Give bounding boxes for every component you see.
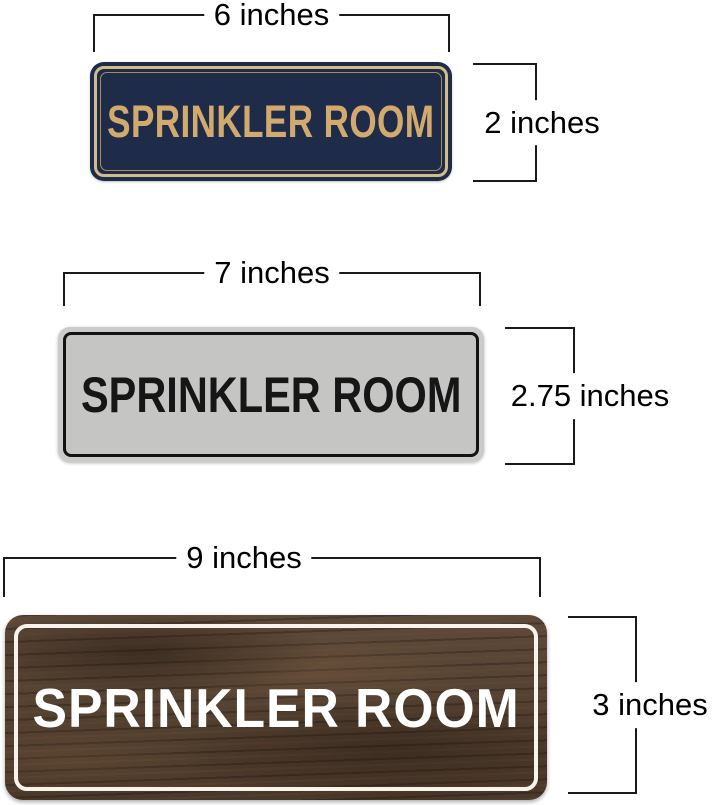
dimension-tick-right <box>539 557 541 597</box>
sign-size-comparison-diagram: 6 inches SPRINKLER ROOM 2 inches 7 inche… <box>0 0 722 805</box>
sign-silver: SPRINKLER ROOM <box>58 327 484 462</box>
sign-text-wrap: SPRINKLER ROOM <box>58 327 484 462</box>
width-dimension-bracket-navy: 6 inches <box>93 14 450 16</box>
height-dimension-label-wood: 3 inches <box>584 682 715 728</box>
height-dimension-label-navy: 2 inches <box>476 100 607 146</box>
width-dimension-label-wood: 9 inches <box>176 539 311 577</box>
sign-text-wrap: SPRINKLER ROOM <box>5 615 547 800</box>
sign-text-navy: SPRINKLER ROOM <box>107 96 434 148</box>
height-dimension-label-silver: 2.75 inches <box>503 373 678 419</box>
dimension-tick-left <box>93 14 95 52</box>
dimension-tick-bottom <box>505 463 575 465</box>
sign-text-wrap: SPRINKLER ROOM <box>90 62 452 181</box>
width-dimension-label-navy: 6 inches <box>204 0 339 34</box>
dimension-tick-bottom <box>568 792 637 794</box>
height-dimension-bracket-wood: 3 inches <box>635 616 637 794</box>
height-dimension-bracket-silver: 2.75 inches <box>573 327 575 465</box>
dimension-tick-top <box>505 327 575 329</box>
width-dimension-bracket-wood: 9 inches <box>3 557 541 559</box>
width-dimension-label-silver: 7 inches <box>204 254 339 292</box>
dimension-tick-left <box>3 557 5 597</box>
dimension-tick-top <box>568 616 637 618</box>
dimension-tick-bottom <box>473 180 537 182</box>
sign-text-silver: SPRINKLER ROOM <box>81 366 461 424</box>
sign-navy: SPRINKLER ROOM <box>90 62 452 181</box>
dimension-tick-right <box>479 272 481 306</box>
width-dimension-bracket-silver: 7 inches <box>63 272 481 274</box>
sign-wood: SPRINKLER ROOM <box>5 615 547 800</box>
dimension-tick-top <box>473 63 537 65</box>
dimension-tick-right <box>448 14 450 52</box>
sign-text-wood: SPRINKLER ROOM <box>32 676 519 740</box>
height-dimension-bracket-navy: 2 inches <box>535 63 537 182</box>
dimension-tick-left <box>63 272 65 306</box>
